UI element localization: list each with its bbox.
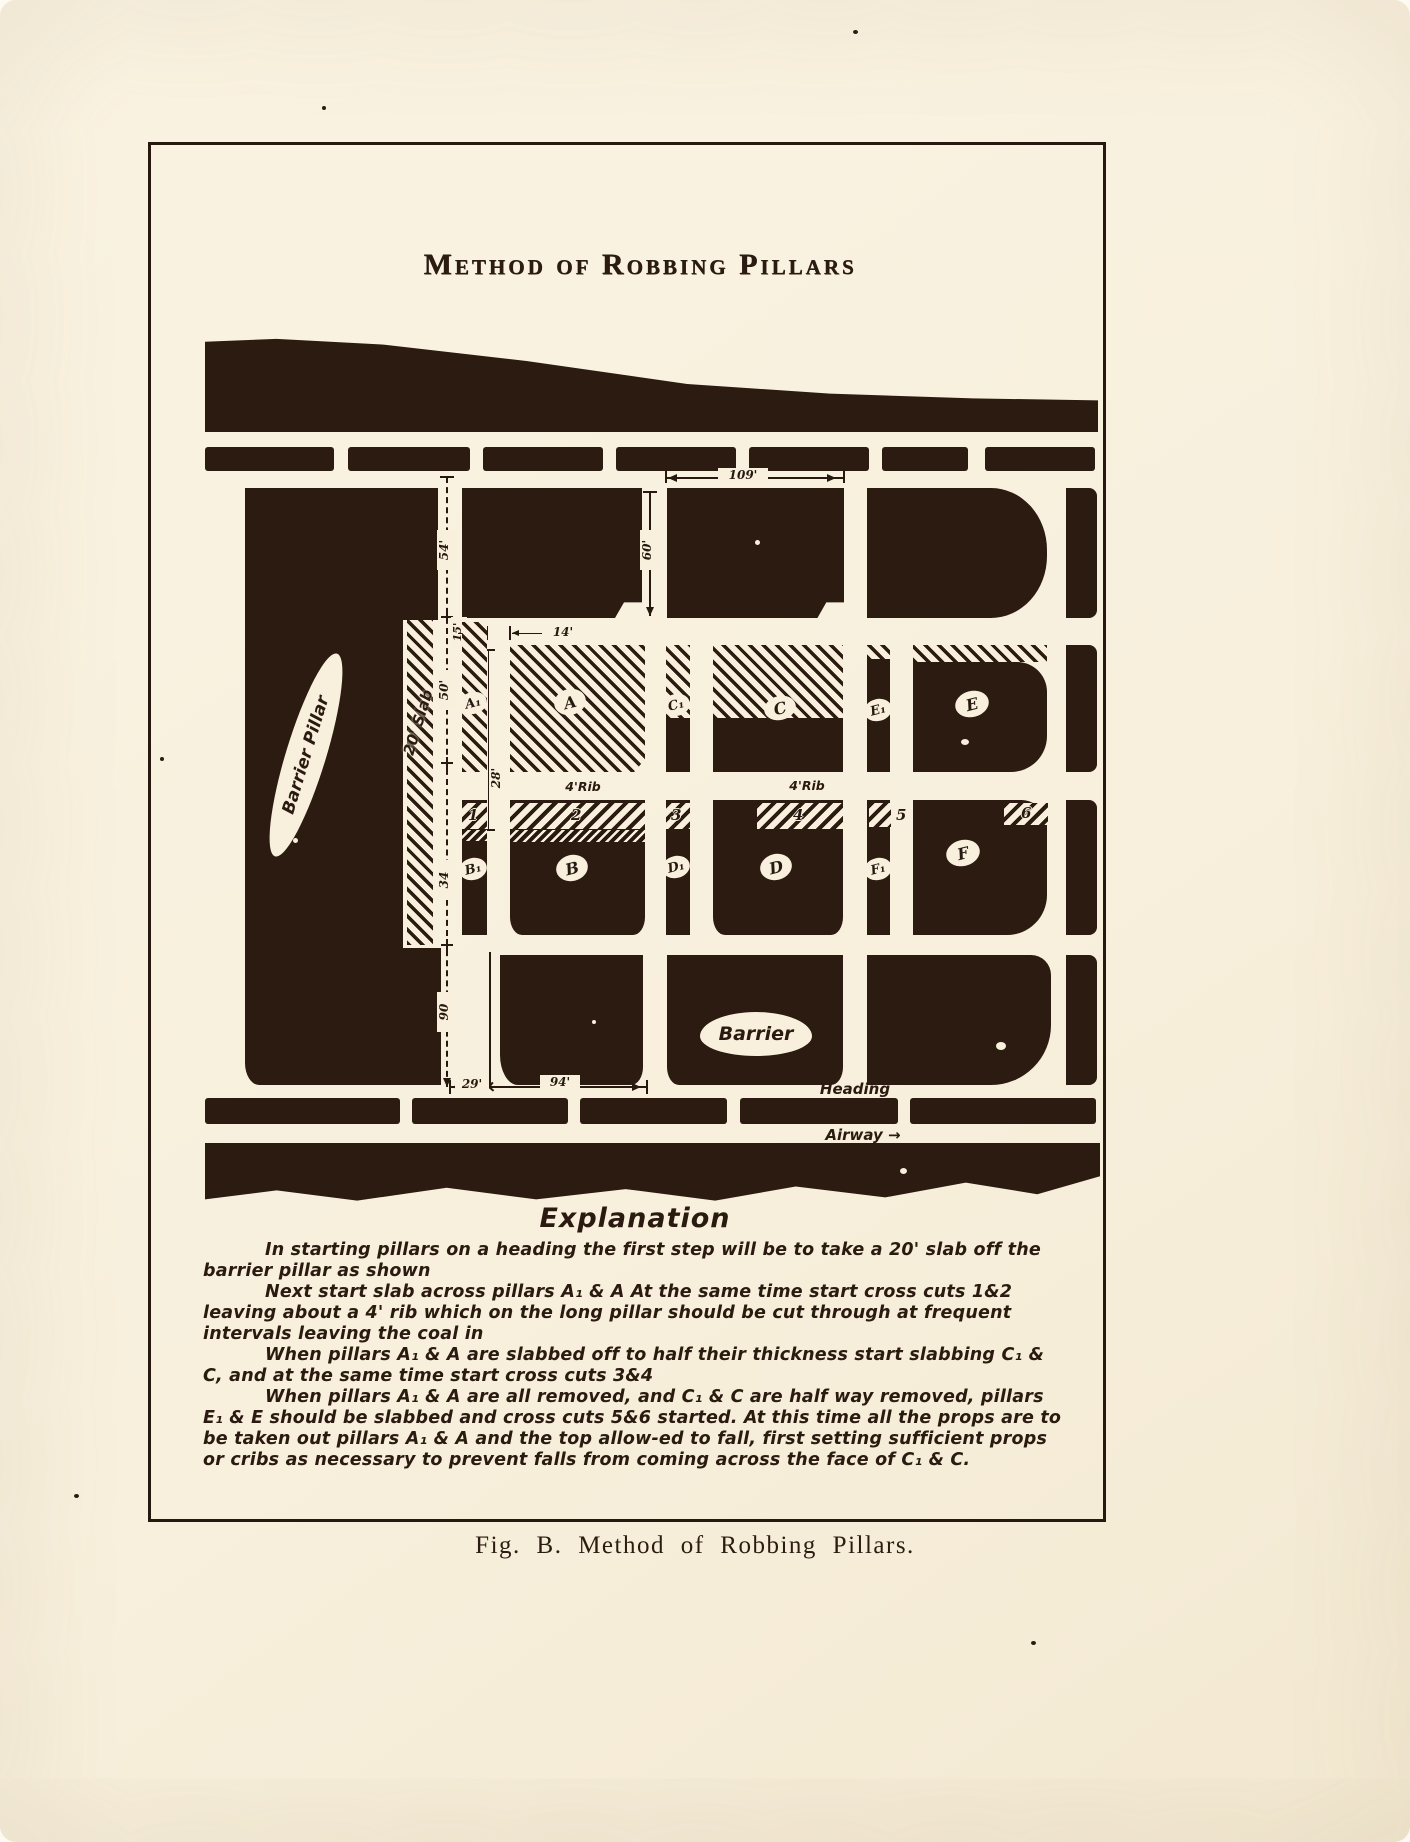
dim-34-label: 34 (437, 860, 457, 900)
row1-pillar-3 (867, 488, 1047, 618)
dim-arrow (632, 1083, 641, 1091)
white-speck (592, 1020, 596, 1024)
rib-label-left: 4'Rib (548, 779, 618, 794)
row1-pillar-1 (462, 488, 642, 618)
dim-tick (643, 491, 657, 493)
ink-speck (1087, 424, 1091, 428)
stub-pillar (580, 1098, 727, 1124)
white-speck (293, 838, 298, 843)
dim-29-label: 29' (455, 1077, 489, 1095)
dim-54-label: 54' (437, 530, 457, 570)
scanned-document-page: Method of Robbing Pillars 20' Slab Barri… (0, 0, 1410, 1842)
cut-label-1: 1 (468, 806, 478, 824)
white-speck (961, 739, 969, 745)
stub-pillar (882, 447, 968, 471)
dim-cross (441, 939, 453, 951)
cut-label-3: 3 (671, 806, 681, 824)
row1-pillar-2 (667, 488, 844, 618)
dim-94-label: 94' (540, 1075, 580, 1093)
ink-speck (74, 1494, 79, 1498)
barrier-label-oval: Barrier (700, 1012, 812, 1056)
barrier-label: Barrier (719, 1023, 794, 1045)
explanation-paragraph: In starting pillars on a heading the fir… (203, 1240, 1067, 1282)
dim-tick (646, 1080, 648, 1094)
cut-label-5: 5 (896, 806, 906, 824)
stub-pillar (483, 447, 603, 471)
row2-pillar-edge (1066, 645, 1097, 772)
row1-pillar-edge (1066, 488, 1097, 618)
rib-dense-strip (510, 830, 645, 842)
pillar-e-slab (913, 645, 1047, 662)
dim-50-label: 50' (437, 670, 457, 710)
dim-60-label: 60' (640, 530, 660, 570)
white-speck (755, 540, 760, 545)
explanation-block: In starting pillars on a heading the fir… (203, 1240, 1067, 1471)
dim-tick (440, 476, 454, 478)
pillar-e (913, 662, 1047, 772)
figure-title: Method of Robbing Pillars (360, 248, 920, 288)
cross-cut-strip-5 (869, 803, 891, 827)
figure-caption: Fig. B. Method of Robbing Pillars. (345, 1532, 1045, 1566)
barrier-pillar-top (245, 488, 438, 620)
stub-pillar (205, 447, 334, 471)
dim-28-label: 28' (489, 758, 509, 798)
white-speck (996, 1042, 1006, 1050)
ink-speck (160, 757, 164, 761)
stub-pillar (412, 1098, 568, 1124)
row3-pillar-edge (1066, 800, 1097, 935)
dim-14-label: 14' (545, 625, 581, 643)
stub-pillar (985, 447, 1095, 471)
rib-label-right: 4'Rib (772, 778, 842, 793)
pillar-c1 (666, 718, 690, 772)
ink-speck (853, 30, 858, 34)
dim-28-line (488, 650, 489, 830)
stub-pillar (348, 447, 470, 471)
dim-tick (665, 471, 667, 483)
dim-tick (449, 1080, 451, 1094)
explanation-title: Explanation (500, 1203, 770, 1234)
stub-pillar (910, 1098, 1096, 1124)
stub-pillar (740, 1098, 898, 1124)
dim-cross (441, 757, 453, 769)
cut-label-6: 6 (1021, 804, 1031, 822)
dim-arrow (668, 474, 677, 482)
dim-arrow (512, 630, 519, 636)
heading-label: Heading (800, 1080, 910, 1098)
dim-arrow (827, 474, 836, 482)
dim-tick (509, 626, 511, 640)
ink-speck (1031, 1641, 1036, 1645)
explanation-paragraph: Next start slab across pillars A₁ & A At… (203, 1282, 1067, 1345)
pillar-e1-slab (867, 645, 890, 659)
dim-tick (843, 471, 845, 483)
pillar-c (713, 718, 843, 772)
row4-pillar-edge (1066, 955, 1097, 1085)
row4-pillar-3 (867, 955, 1051, 1085)
airway-label: Airway → (798, 1126, 928, 1144)
dim-90-label: 90 (437, 992, 457, 1032)
dim-arrow (646, 607, 654, 616)
cut-label-2: 2 (571, 806, 581, 824)
rib-dense-strip (462, 830, 487, 841)
cut-label-4: 4 (793, 806, 803, 824)
explanation-paragraph: When pillars A₁ & A are slabbed off to h… (203, 1345, 1067, 1387)
white-speck (900, 1168, 907, 1174)
road-guide-line (489, 952, 491, 1088)
dim-109-label: 109' (718, 468, 768, 486)
barrier-pillar-bottom (245, 948, 441, 1085)
stub-pillar (205, 1098, 400, 1124)
explanation-paragraph: When pillars A₁ & A are all removed, and… (203, 1387, 1067, 1471)
ink-speck (322, 106, 326, 110)
row4-pillar-1 (500, 955, 643, 1085)
